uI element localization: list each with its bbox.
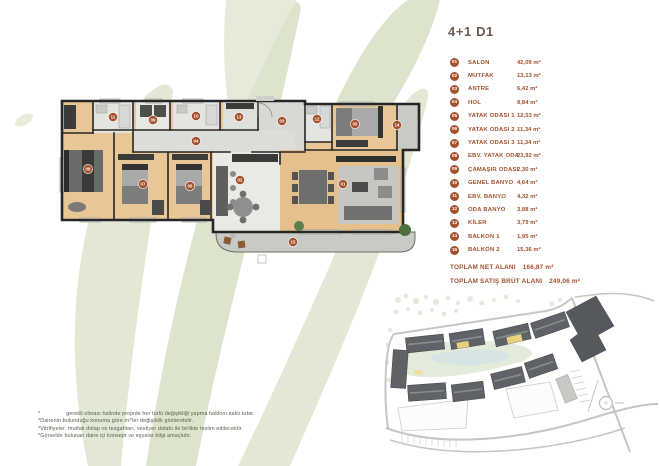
page-title: 4+1 D1 bbox=[448, 24, 494, 39]
room-area: 13,13 m² bbox=[517, 73, 541, 79]
room-number-badge: 14 bbox=[450, 232, 459, 241]
room-area: 3,79 m² bbox=[517, 220, 537, 226]
room-label: BALKON 2 bbox=[468, 247, 517, 253]
legend-row: 01 SALON 42,09 m² bbox=[450, 56, 600, 69]
room-number-badge: 15 bbox=[450, 246, 459, 255]
room-number-badge: 09 bbox=[450, 165, 459, 174]
total-net-row: TOPLAM NET ALANI 166,87 m² bbox=[450, 260, 580, 274]
legend-row: 03 ANTRE 6,42 m² bbox=[450, 83, 600, 96]
room-label: SALON bbox=[468, 60, 517, 66]
legend-row: 06 YATAK ODASI 2 11,34 m² bbox=[450, 123, 600, 136]
legend-row: 07 YATAK ODASI 3 11,34 m² bbox=[450, 136, 600, 149]
room-area: 4,32 m² bbox=[517, 194, 537, 200]
room-number-badge: 06 bbox=[450, 125, 459, 134]
legend-row: 13 KİLER 3,79 m² bbox=[450, 217, 600, 230]
room-label: ÇAMAŞIR ODASI bbox=[468, 167, 517, 173]
disclaimer-line: *Görselde bulunan daire içi konsept ve e… bbox=[38, 433, 254, 440]
legend-row: 10 GENEL BANYO 4,64 m² bbox=[450, 177, 600, 190]
room-area: 4,64 m² bbox=[517, 180, 537, 186]
legend-row: 11 EBV. BANYO 4,32 m² bbox=[450, 190, 600, 203]
room-label: HOL bbox=[468, 100, 517, 106]
room-area: 15,36 m² bbox=[517, 247, 541, 253]
legend-row: 05 YATAK ODASI 1 12,53 m² bbox=[450, 110, 600, 123]
room-area: 6,42 m² bbox=[517, 86, 537, 92]
total-gross-value: 249,06 m² bbox=[549, 278, 580, 285]
room-number-badge: 13 bbox=[450, 219, 459, 228]
brochure-page: 010203040506070809101112131415 bbox=[0, 0, 660, 466]
room-number-badge: 11 bbox=[450, 192, 459, 201]
legend-row: 15 BALKON 2 15,36 m² bbox=[450, 243, 600, 256]
room-label: MUTFAK bbox=[468, 73, 517, 79]
room-number-badge: 03 bbox=[450, 85, 459, 94]
room-label: YATAK ODASI 2 bbox=[468, 127, 517, 133]
room-area: 1,95 m² bbox=[517, 234, 537, 240]
room-label: EBV. BANYO bbox=[468, 194, 517, 200]
room-number-badge: 01 bbox=[450, 58, 459, 67]
total-gross-row: TOPLAM SATIŞ BRÜT ALANI 249,06 m² bbox=[450, 274, 580, 288]
room-number-badge: 08 bbox=[450, 152, 459, 161]
room-label: KİLER bbox=[468, 220, 517, 226]
total-net-label: TOPLAM NET ALANI bbox=[450, 264, 516, 271]
room-area: 23,92 m² bbox=[517, 153, 541, 159]
room-number-badge: 04 bbox=[450, 98, 459, 107]
total-gross-label: TOPLAM SATIŞ BRÜT ALANI bbox=[450, 278, 542, 285]
room-area: 9,84 m² bbox=[517, 100, 537, 106]
legend-row: 09 ÇAMAŞIR ODASI 2,30 m² bbox=[450, 163, 600, 176]
room-area: 11,34 m² bbox=[517, 127, 540, 133]
room-label: ANTRE bbox=[468, 86, 517, 92]
room-number-badge: 10 bbox=[450, 179, 459, 188]
room-area: 2,30 m² bbox=[517, 167, 537, 173]
room-label: BALKON 1 bbox=[468, 234, 517, 240]
room-label: YATAK ODASI 1 bbox=[468, 113, 517, 119]
room-area: 42,09 m² bbox=[517, 60, 541, 66]
legend-row: 04 HOL 9,84 m² bbox=[450, 96, 600, 109]
disclaimer-line: *Dairenin bulunduğu konuma göre m²'ler d… bbox=[38, 418, 254, 425]
room-number-badge: 12 bbox=[450, 205, 459, 214]
room-label: EBV. YATAK ODA bbox=[468, 153, 517, 159]
room-number-badge: 07 bbox=[450, 139, 459, 148]
disclaimer-line: *Vitrifiyeler, mutfak dolap ve tezgahlar… bbox=[38, 426, 254, 433]
room-label: ODA BANYO bbox=[468, 207, 517, 213]
disclaimer-line: *gerekli olması halinde projede her türl… bbox=[38, 411, 254, 418]
legend-row: 08 EBV. YATAK ODA 23,92 m² bbox=[450, 150, 600, 163]
legend-row: 14 BALKON 1 1,95 m² bbox=[450, 230, 600, 243]
legend-row: 02 MUTFAK 13,13 m² bbox=[450, 69, 600, 82]
room-area: 12,53 m² bbox=[517, 113, 541, 119]
room-number-badge: 05 bbox=[450, 112, 459, 121]
room-legend: 01 SALON 42,09 m² 02 MUTFAK 13,13 m² 03 … bbox=[450, 56, 600, 257]
room-number-badge: 02 bbox=[450, 72, 459, 81]
room-label: YATAK ODASI 3 bbox=[468, 140, 517, 146]
room-area: 3,88 m² bbox=[517, 207, 537, 213]
room-label: GENEL BANYO bbox=[468, 180, 517, 186]
total-net-value: 166,87 m² bbox=[523, 264, 554, 271]
disclaimer-block: *gerekli olması halinde projede her türl… bbox=[38, 411, 254, 440]
room-area: 11,34 m² bbox=[517, 140, 540, 146]
totals-block: TOPLAM NET ALANI 166,87 m² TOPLAM SATIŞ … bbox=[450, 260, 580, 288]
legend-row: 12 ODA BANYO 3,88 m² bbox=[450, 203, 600, 216]
